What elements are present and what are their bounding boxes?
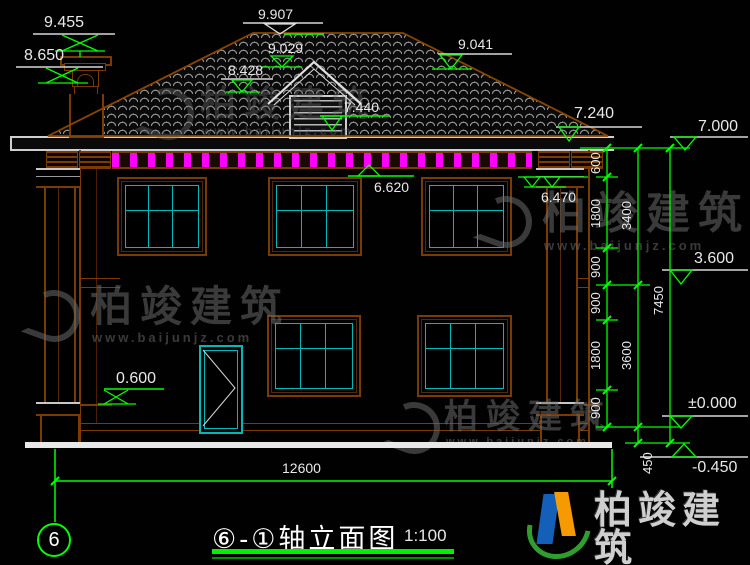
chimney-body <box>69 94 104 138</box>
cad-elevation-canvas: 柏竣建筑 www.baijunjz.com 柏竣建筑 www.baijunjz.… <box>0 0 750 565</box>
logo-building-icon <box>536 494 559 544</box>
brand-name: 柏竣建筑 <box>594 492 750 565</box>
column-base-cap <box>36 402 80 416</box>
dimension-label: 900 <box>589 287 602 319</box>
dimension-label: 1800 <box>589 181 602 247</box>
dimension-label: 3400 <box>620 160 633 272</box>
dimension-label: 7450 <box>652 262 665 340</box>
floor-band-left <box>80 278 120 279</box>
floor-band-left <box>80 287 120 288</box>
corbel-bracket <box>79 151 111 169</box>
window <box>117 177 207 256</box>
column-pedestal <box>40 412 80 443</box>
chimney-arch-opening <box>77 74 94 86</box>
watermark-text: 柏竣建筑 <box>90 286 290 328</box>
column-capital <box>536 168 584 188</box>
bottom-dimension-lines <box>51 449 616 522</box>
window-glass <box>275 323 353 389</box>
window-glass <box>125 185 199 248</box>
title-underline-thin <box>212 557 454 559</box>
chimney-arch-box <box>72 70 99 87</box>
elevation-label: -0.450 <box>692 460 737 476</box>
wall-edge-left <box>79 150 81 442</box>
dimension-label: 900 <box>589 250 602 284</box>
column-shaft <box>546 184 578 402</box>
elevation-label: 9.455 <box>44 15 84 31</box>
axis-number: 6 <box>48 529 59 552</box>
wall-line-left-inner <box>96 166 97 423</box>
elevation-label: 7.000 <box>698 119 738 135</box>
elevation-label: 6.470 <box>541 190 576 204</box>
brand-logo-block: 柏竣建筑 www.baijunjz.com <box>526 492 750 565</box>
elevation-label: ±0.000 <box>688 396 737 412</box>
dimension-label: 600 <box>589 146 602 180</box>
dentil-band <box>112 151 532 169</box>
corbel-bracket <box>46 151 78 169</box>
corbel-bracket <box>538 151 570 169</box>
window-glass <box>425 323 504 389</box>
elevation-label: 9.029 <box>268 41 303 55</box>
window <box>421 177 512 256</box>
dimension-label: 1800 <box>589 324 602 388</box>
elevation-label: 8.650 <box>24 48 64 64</box>
elevation-label: 9.041 <box>458 37 493 51</box>
column-shaft <box>44 184 76 402</box>
elevation-label: 7.440 <box>344 100 379 114</box>
window-glass <box>429 185 504 248</box>
window <box>417 315 512 397</box>
dimension-label: 12600 <box>282 461 321 475</box>
dimension-label: 3600 <box>620 300 633 412</box>
window <box>268 177 362 256</box>
watermark: 柏竣建筑 www.baijunjz.com <box>480 192 750 257</box>
window <box>267 315 361 397</box>
elevation-label: 8.428 <box>228 63 263 77</box>
elevation-label: 3.600 <box>694 251 734 267</box>
column-capital <box>36 168 80 188</box>
wall-base-trim <box>80 430 589 431</box>
ground-line <box>25 442 612 448</box>
logo-building-icon <box>554 492 576 536</box>
elevation-label: 9.907 <box>258 7 293 21</box>
logo-swoosh-icon <box>515 484 603 565</box>
axis-bubble: 6 <box>37 523 71 557</box>
elevation-label: 6.620 <box>374 180 409 194</box>
dimension-label: 900 <box>589 391 602 425</box>
dimension-label: 450 <box>641 446 654 480</box>
title-underline <box>212 549 454 554</box>
wall-base-trim <box>80 423 589 424</box>
drawing-scale: 1:100 <box>404 526 447 546</box>
dormer-louver-vent <box>289 95 347 139</box>
window-glass <box>276 185 354 248</box>
watermark-logo-icon <box>381 395 448 462</box>
entry-door <box>199 345 243 434</box>
elevation-label: 7.240 <box>574 106 614 122</box>
column-pedestal <box>540 412 580 443</box>
porch-slab-edge <box>76 404 112 406</box>
watermark-url: www.baijunjz.com <box>92 328 290 349</box>
elevation-label: 0.600 <box>116 371 156 387</box>
column-base-cap <box>536 402 584 416</box>
